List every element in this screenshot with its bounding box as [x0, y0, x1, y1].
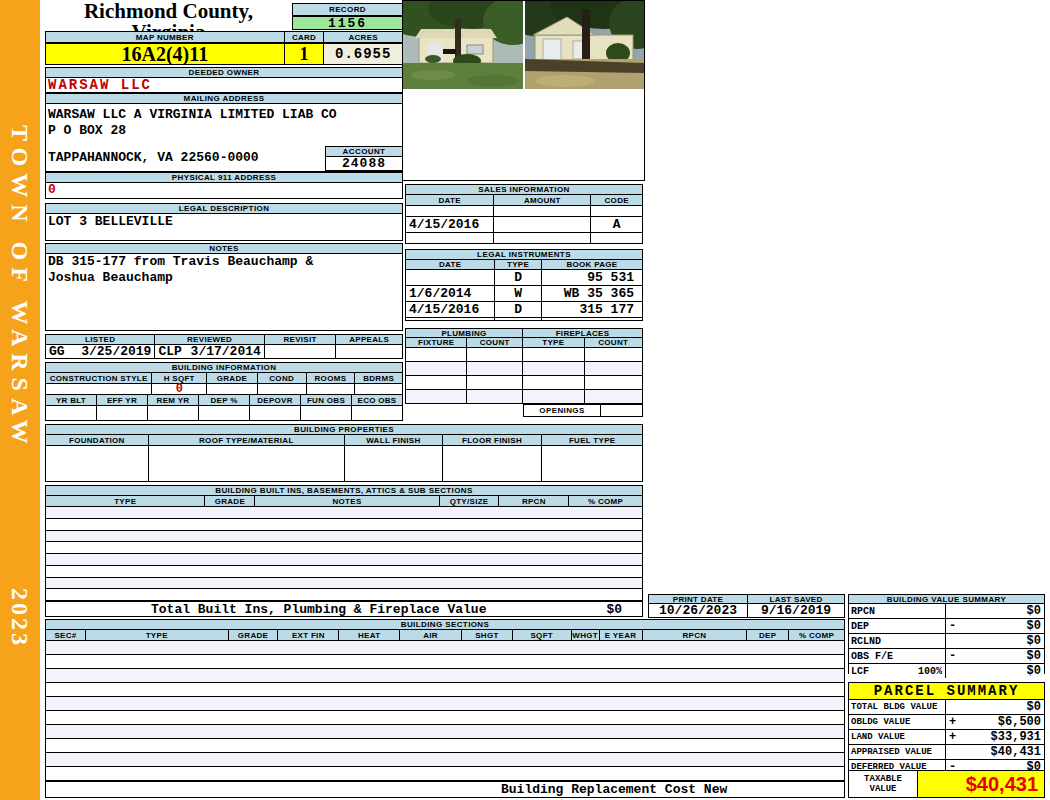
foundation-value — [46, 446, 149, 481]
building-section-row — [46, 753, 844, 767]
built-ins-rows — [45, 507, 643, 601]
builtins-qty-header: QTY/SIZE — [440, 496, 500, 506]
map-number-value: 16A2(4)11 — [46, 44, 285, 64]
building-section-row — [46, 767, 844, 780]
sales-amount — [494, 217, 591, 232]
acres-value: 0.6955 — [324, 44, 402, 64]
building-section-row — [46, 711, 844, 725]
sec-header: SEC# — [46, 630, 86, 640]
acres-header: ACRES — [324, 32, 402, 42]
notes-line-1: DB 315-177 from Travis Beauchamp & — [46, 254, 402, 270]
built-ins-row — [46, 507, 642, 519]
ps-row-land: LAND VALUE + $33,931 — [849, 730, 1044, 745]
instruments-header-row: DATE TYPE BOOK PAGE — [405, 260, 643, 270]
mailing-line-1: WARSAW LLC A VIRGINIA LIMITED LIAB CO — [48, 107, 337, 122]
plumbing-fireplace-row — [406, 362, 642, 376]
last-saved-header: LAST SAVED — [748, 595, 844, 603]
sqft-header: SQFT — [513, 630, 572, 640]
sales-code — [591, 233, 642, 243]
air-header: AIR — [400, 630, 462, 640]
effyr-value — [97, 406, 148, 420]
fireplace-count-header: COUNT — [585, 338, 643, 347]
inst-type-header: TYPE — [495, 260, 542, 269]
openings-label: OPENINGS — [523, 404, 601, 417]
reviewed-header: REVIEWED — [155, 335, 264, 344]
building-section-row — [46, 697, 844, 711]
fixture-cell — [406, 348, 467, 361]
ps-value: $33,931 — [991, 730, 1041, 744]
fp-count-cell — [585, 348, 643, 361]
ecoobs-value — [352, 406, 402, 420]
footer-text: Building Replacement Cost New — [46, 782, 727, 797]
inst-type: D — [495, 302, 542, 317]
ps-label: LAND VALUE — [849, 730, 946, 744]
instruments-rows: D 95 531 1/6/2014 W WB 35 365 4/15/2016 … — [405, 270, 643, 321]
building-info-header-row-2: YR BLT EFF YR REM YR DEP % DEPOVR FUN OB… — [45, 395, 403, 406]
building-information-header: BUILDING INFORMATION — [45, 362, 403, 373]
review-value-row: GG 3/25/2019 CLP 3/17/2014 — [45, 345, 403, 359]
plumbing-fireplaces-header-row: PLUMBING FIREPLACES — [405, 328, 643, 338]
map-header-row: MAP NUMBER CARD ACRES — [45, 31, 403, 43]
sales-date — [406, 206, 494, 216]
record-header: RECORD — [292, 3, 403, 16]
plumbing-fireplace-row — [406, 376, 642, 390]
title-block: Richmond County, Virginia Commissioner o… — [45, 1, 292, 31]
fireplace-type-header: TYPE — [523, 338, 584, 347]
dep2-header: DEP — [747, 630, 789, 640]
built-ins-row — [46, 519, 642, 531]
plumbing-fireplaces-rows — [405, 348, 643, 404]
card-header: CARD — [285, 32, 325, 42]
construction-style-header: CONSTRUCTION STYLE — [46, 373, 152, 383]
sales-code-header: CODE — [591, 195, 642, 205]
building-section-row — [46, 739, 844, 753]
reviewed-date: 3/17/2014 — [191, 344, 261, 359]
bvs-row-rclnd: RCLND $0 — [849, 634, 1044, 649]
bvs-value: $0 — [1027, 619, 1041, 633]
sidebar: TOWN OF WARSAW 2023 — [0, 0, 40, 800]
fp-type-cell — [523, 362, 584, 375]
sales-code — [591, 206, 642, 216]
bvs-row-lcf: LCF 100% $0 — [849, 664, 1044, 678]
print-saved-value-row: 10/26/2023 9/16/2019 — [648, 604, 845, 618]
built-ins-row — [46, 578, 642, 590]
hsqft-value: 0 — [152, 384, 207, 394]
building-sections-header-row: SEC# TYPE GRADE EXT FIN HEAT AIR SHGT SQ… — [45, 630, 845, 641]
map-value-row: 16A2(4)11 1 0.6955 — [45, 43, 403, 65]
ecoobs-header: ECO OBS — [352, 395, 402, 405]
mailing-address-header: MAILING ADDRESS — [45, 93, 403, 104]
ps-row-appraised: APPRAISED VALUE $40,431 — [849, 745, 1044, 760]
count-cell — [467, 362, 523, 375]
built-ins-total-value: $0 — [606, 602, 642, 617]
type-header: TYPE — [86, 630, 229, 640]
taxable-label: TAXABLE VALUE — [848, 770, 918, 798]
sales-amount — [494, 233, 591, 243]
cond-value — [258, 384, 307, 394]
cond-header: COND — [258, 373, 307, 383]
parcel-summary-header: PARCEL SUMMARY — [848, 682, 1045, 700]
listed-header: LISTED — [46, 335, 155, 344]
floorfinish-value — [443, 446, 543, 481]
built-ins-total-row: Total Built Ins, Plumbing & Fireplace Va… — [45, 601, 643, 617]
built-ins-row — [46, 531, 642, 543]
sales-row: 4/15/2016 A — [406, 217, 642, 233]
inst-bookpage-header: BOOK PAGE — [542, 260, 642, 269]
ps-op: + — [949, 715, 956, 729]
listed-value: GG 3/25/2019 — [46, 345, 155, 358]
sales-header-row: DATE AMOUNT CODE — [405, 195, 643, 206]
roof-header: ROOF TYPE/MATERIAL — [149, 435, 345, 445]
fp-type-cell — [523, 348, 584, 361]
inst-bookpage: WB 35 365 — [542, 286, 642, 301]
building-info-value-row-2 — [45, 406, 403, 421]
rooms-header: ROOMS — [307, 373, 356, 383]
built-ins-row — [46, 566, 642, 578]
funobs-value — [301, 406, 352, 420]
builtins-notes-header: NOTES — [255, 496, 439, 506]
fp-type-cell — [523, 376, 584, 389]
inst-date — [406, 270, 495, 285]
bvs-label: DEP — [851, 621, 869, 632]
builtins-comp-header: % COMP — [569, 496, 642, 506]
count-cell — [467, 348, 523, 361]
legal-description-value: LOT 3 BELLEVILLE — [45, 214, 403, 241]
bvs-row-dep: DEP - $0 — [849, 619, 1044, 634]
deppct-value — [199, 406, 250, 420]
listed-date: 3/25/2019 — [81, 344, 151, 359]
sales-rows: 4/15/2016 A — [405, 206, 643, 244]
notes-box: DB 315-177 from Travis Beauchamp & Joshu… — [45, 254, 403, 331]
sales-date-header: DATE — [406, 195, 494, 205]
fp-count-cell — [585, 362, 643, 375]
building-section-row — [46, 655, 844, 669]
building-section-row — [46, 725, 844, 739]
floorfinish-header: FLOOR FINISH — [443, 435, 543, 445]
construction-style-value — [46, 384, 152, 394]
openings-value — [600, 404, 643, 417]
house-photo-side — [525, 1, 644, 89]
building-section-row — [46, 641, 844, 655]
fixture-cell — [406, 362, 467, 375]
ps-op: + — [949, 730, 956, 744]
ps-value: $6,500 — [998, 715, 1041, 729]
eyear-header: E YEAR — [600, 630, 643, 640]
fixture-cell — [406, 376, 467, 389]
physical-address-header: PHYSICAL 911 ADDRESS — [45, 172, 403, 183]
reviewed-value: CLP 3/17/2014 — [155, 345, 264, 358]
bvs-value: $0 — [1027, 649, 1041, 663]
built-ins-row — [46, 542, 642, 554]
wallfinish-value — [345, 446, 443, 481]
fueltype-header: FUEL TYPE — [542, 435, 642, 445]
bdrms-value — [355, 384, 402, 394]
inst-type: D — [495, 270, 542, 285]
fp-count-cell — [585, 376, 643, 389]
rooms-value — [307, 384, 356, 394]
instrument-row: D 95 531 — [406, 270, 642, 286]
ps-row-total-bldg: TOTAL BLDG VALUE $0 — [849, 700, 1044, 715]
building-properties-header-row: FOUNDATION ROOF TYPE/MATERIAL WALL FINIS… — [45, 435, 643, 446]
notes-line-2: Joshua Beauchamp — [46, 270, 402, 286]
building-value-summary-rows: RPCN $0 DEP - $0 RCLND $0 O — [848, 604, 1045, 674]
inst-date-header: DATE — [406, 260, 495, 269]
sales-amount — [494, 206, 591, 216]
fixture-header: FIXTURE — [406, 338, 467, 347]
bvs-row-obs: OBS F/E - $0 — [849, 649, 1044, 664]
physical-address-value: 0 — [45, 183, 403, 199]
built-ins-row — [46, 589, 642, 600]
sales-row — [406, 206, 642, 217]
ps-value: $40,431 — [991, 745, 1041, 759]
grade-header: GRADE — [207, 373, 258, 383]
bvs-row-rpcn: RPCN $0 — [849, 604, 1044, 619]
building-sections-rows — [45, 641, 845, 781]
whgt-header: WHGT — [572, 630, 600, 640]
ps-row-obldg: OBLDG VALUE + $6,500 — [849, 715, 1044, 730]
notes-header: NOTES — [45, 243, 403, 254]
print-date-header: PRINT DATE — [649, 595, 748, 603]
ps-label: APPRAISED VALUE — [849, 745, 946, 759]
bdrms-header: BDRMS — [355, 373, 402, 383]
building-properties-header: BUILDING PROPERTIES — [45, 424, 643, 435]
building-section-row — [46, 669, 844, 683]
rpcn2-header: RPCN — [643, 630, 748, 640]
inst-date: 1/6/2014 — [406, 286, 495, 301]
built-ins-row — [46, 554, 642, 566]
sidebar-year-label: 2023 — [6, 588, 33, 648]
bvs-label: LCF — [851, 666, 869, 677]
yrblt-value — [46, 406, 97, 420]
remyr-value — [148, 406, 199, 420]
taxable-value: $40,431 — [918, 770, 1045, 798]
inst-type: W — [495, 286, 542, 301]
sales-row — [406, 233, 642, 243]
plumbing-count-header: COUNT — [467, 338, 523, 347]
sales-date — [406, 233, 494, 243]
inst-date — [406, 318, 495, 320]
property-record-card: TOWN OF WARSAW 2023 Richmond County, Vir… — [0, 0, 1050, 800]
heat-header: HEAT — [339, 630, 400, 640]
record-value: 1156 — [292, 16, 403, 30]
appeals-header: APPEALS — [336, 335, 402, 344]
funobs-header: FUN OBS — [301, 395, 352, 405]
building-info-value-row-1: 0 — [45, 384, 403, 395]
revisit-value — [265, 345, 337, 358]
sidebar-jurisdiction-label: TOWN OF WARSAW — [6, 125, 33, 451]
instrument-row — [406, 318, 642, 320]
comp2-header: % COMP — [789, 630, 844, 640]
ps-label: OBLDG VALUE — [849, 715, 946, 729]
plumbing-header: PLUMBING — [406, 329, 523, 337]
inst-type — [495, 318, 542, 320]
deppct-header: DEP % — [199, 395, 250, 405]
bvs-label: OBS F/E — [851, 651, 893, 662]
deeded-owner-value: WARSAW LLC — [45, 78, 403, 93]
inst-date: 4/15/2016 — [406, 302, 495, 317]
photo-panel — [402, 0, 645, 181]
legal-instruments-header: LEGAL INSTRUMENTS — [405, 249, 643, 260]
built-ins-header-row: TYPE GRADE NOTES QTY/SIZE RPCN % COMP — [45, 496, 643, 507]
sales-code: A — [591, 217, 642, 232]
remyr-header: REM YR — [148, 395, 199, 405]
builtins-grade-header: GRADE — [205, 496, 255, 506]
bvs-value: $0 — [1027, 634, 1041, 648]
sales-information-header: SALES INFORMATION — [405, 184, 643, 195]
count-cell — [467, 390, 523, 403]
building-value-summary-header: BUILDING VALUE SUMMARY — [848, 594, 1045, 604]
shgt-header: SHGT — [462, 630, 513, 640]
bvs-value: $0 — [1027, 664, 1041, 678]
bvs-op: - — [949, 649, 956, 663]
building-properties-value-row — [45, 446, 643, 482]
mailing-line-2: P O BOX 28 — [48, 123, 126, 138]
fp-count-cell — [585, 390, 643, 403]
appeals-value — [336, 345, 402, 358]
sales-amount-header: AMOUNT — [494, 195, 591, 205]
mailing-line-3: TAPPAHANNOCK, VA 22560-0000 — [48, 150, 259, 165]
card-value: 1 — [285, 44, 325, 64]
instrument-row: 1/6/2014 W WB 35 365 — [406, 286, 642, 302]
building-info-header-row-1: CONSTRUCTION STYLE H SQFT GRADE COND ROO… — [45, 373, 403, 384]
house-photo-front — [403, 1, 523, 89]
grade2-header: GRADE — [229, 630, 279, 640]
grade-value — [207, 384, 258, 394]
built-ins-header: BUILDING BUILT INS, BASEMENTS, ATTICS & … — [45, 485, 643, 496]
plumbing-fireplace-row — [406, 348, 642, 362]
inst-bookpage: 315 177 — [542, 302, 642, 317]
taxable-row: TAXABLE VALUE $40,431 — [848, 770, 1045, 798]
revisit-header: REVISIT — [265, 335, 337, 344]
builtins-rpcn-header: RPCN — [499, 496, 569, 506]
building-sections-header: BUILDING SECTIONS — [45, 619, 845, 630]
fireplaces-header: FIREPLACES — [523, 329, 642, 337]
fp-type-cell — [523, 390, 584, 403]
effyr-header: EFF YR — [97, 395, 148, 405]
footer-row: Building Replacement Cost New — [45, 781, 845, 798]
built-ins-total-label: Total Built Ins, Plumbing & Fireplace Va… — [46, 602, 486, 617]
last-saved-value: 9/16/2019 — [748, 604, 844, 617]
reviewed-by: CLP — [158, 344, 181, 359]
map-number-header: MAP NUMBER — [46, 32, 285, 42]
count-cell — [467, 376, 523, 389]
sales-date: 4/15/2016 — [406, 217, 494, 232]
account-value: 24088 — [325, 157, 403, 171]
depovr-header: DEPOVR — [250, 395, 301, 405]
plumbing-fireplaces-subheader-row: FIXTURE COUNT TYPE COUNT — [405, 338, 643, 348]
legal-description-header: LEGAL DESCRIPTION — [45, 203, 403, 214]
yrblt-header: YR BLT — [46, 395, 97, 405]
plumbing-fireplace-row — [406, 390, 642, 403]
ps-value: $0 — [1027, 700, 1041, 714]
wallfinish-header: WALL FINISH — [345, 435, 443, 445]
parcel-summary-rows: TOTAL BLDG VALUE $0 OBLDG VALUE + $6,500… — [848, 700, 1045, 770]
fueltype-value — [542, 446, 642, 481]
inst-bookpage: 95 531 — [542, 270, 642, 285]
listed-by: GG — [49, 344, 65, 359]
bvs-label: RCLND — [851, 636, 881, 647]
foundation-header: FOUNDATION — [46, 435, 149, 445]
bvs-op: - — [949, 619, 956, 633]
building-section-row — [46, 683, 844, 697]
bvs-extra: 100% — [918, 666, 942, 677]
fixture-cell — [406, 390, 467, 403]
depovr-value — [250, 406, 301, 420]
ps-label: TOTAL BLDG VALUE — [849, 700, 946, 714]
builtins-type-header: TYPE — [46, 496, 205, 506]
roof-value — [149, 446, 345, 481]
extfin-header: EXT FIN — [278, 630, 339, 640]
print-date-value: 10/26/2023 — [649, 604, 748, 617]
bvs-value: $0 — [1027, 604, 1041, 618]
inst-bookpage — [542, 318, 642, 320]
bvs-label: RPCN — [851, 606, 875, 617]
instrument-row: 4/15/2016 D 315 177 — [406, 302, 642, 318]
